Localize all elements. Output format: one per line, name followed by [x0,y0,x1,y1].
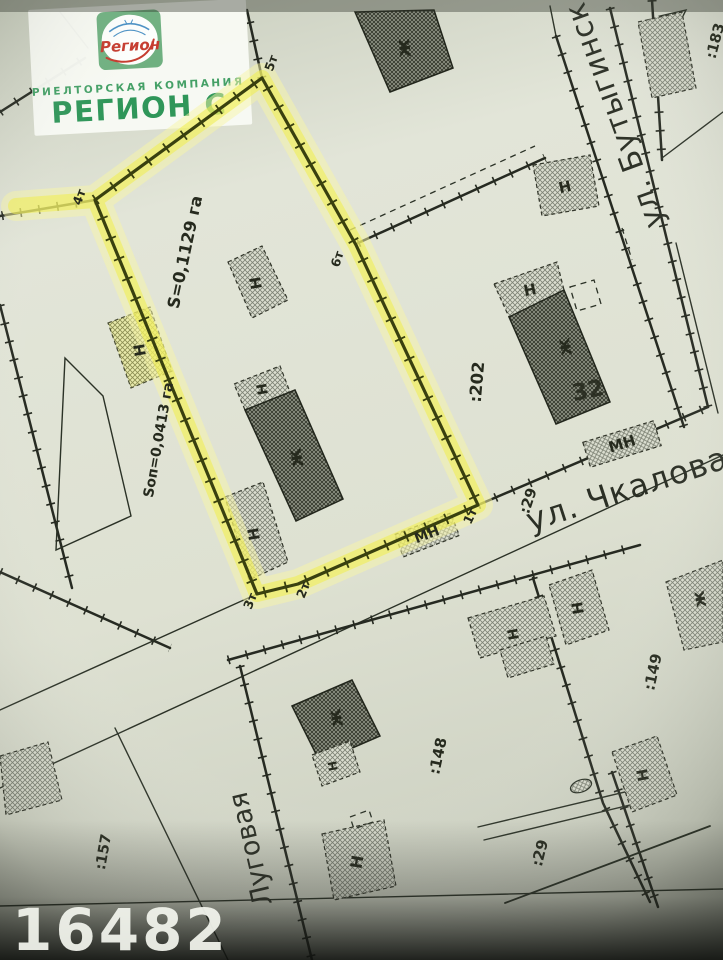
cadastral-map-photo: Регион РИЕЛТОРСКАЯ КОМПАНИЯ РЕГИОН С 1т … [0,0,723,960]
photo-id: 16482 [12,896,229,960]
top-edge-shadow [0,0,723,12]
vignette-overlay [0,0,723,960]
map-canvas: Регион РИЕЛТОРСКАЯ КОМПАНИЯ РЕГИОН С 1т … [0,0,723,960]
